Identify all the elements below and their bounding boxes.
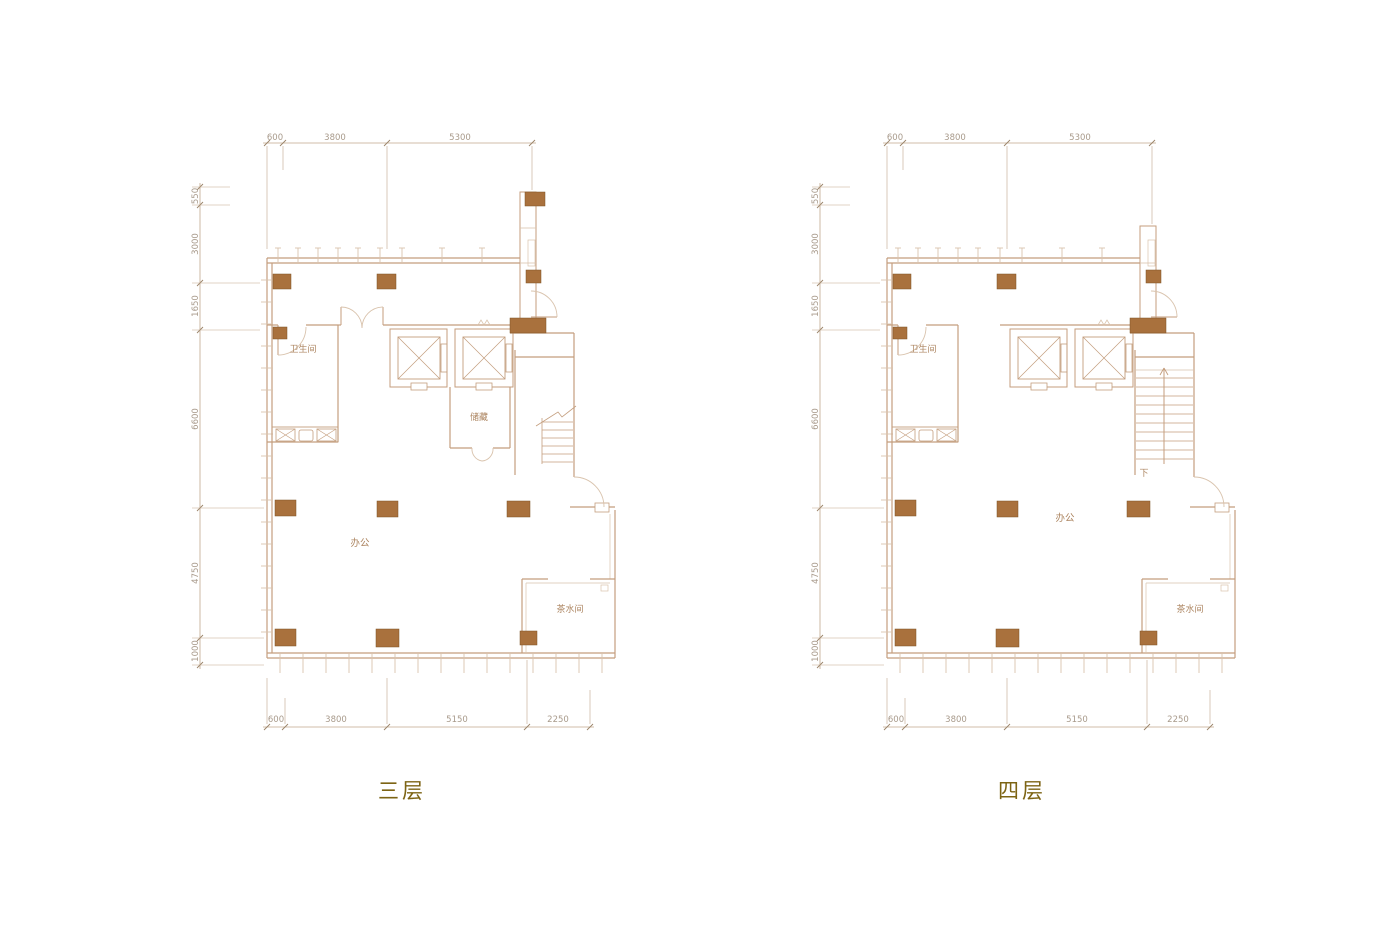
dim-left-0: 550 bbox=[811, 188, 821, 204]
dim-left-2: 1650 bbox=[191, 295, 201, 317]
structural-columns bbox=[893, 270, 1166, 647]
room-label-office: 办公 bbox=[1055, 512, 1075, 524]
dim-left-5: 1000 bbox=[811, 640, 821, 662]
room-label-office: 办公 bbox=[350, 537, 370, 549]
floor-title-fourth: 四层 bbox=[932, 775, 1112, 805]
dim-left-5: 1000 bbox=[191, 640, 201, 662]
dim-left-2: 1650 bbox=[811, 295, 821, 317]
dim-bottom-0: 600 bbox=[268, 715, 284, 725]
dim-bottom-3: 2250 bbox=[547, 715, 569, 725]
dim-left-4: 4750 bbox=[191, 562, 201, 584]
dim-top-0: 600 bbox=[887, 133, 903, 143]
plan-geometry: 6003800530055030001650660047501000600380… bbox=[811, 133, 1235, 730]
dim-top-1: 3800 bbox=[944, 133, 966, 143]
structural-columns bbox=[273, 192, 546, 647]
room-label-tea-room: 茶水间 bbox=[1176, 603, 1203, 615]
dim-bottom-2: 5150 bbox=[1066, 715, 1088, 725]
dim-bottom-2: 5150 bbox=[446, 715, 468, 725]
dim-left-0: 550 bbox=[191, 188, 201, 204]
dim-top-0: 600 bbox=[267, 133, 283, 143]
room-label-tea-room: 茶水间 bbox=[556, 603, 583, 615]
plan-geometry: 6003800530055030001650660047501000600380… bbox=[191, 133, 615, 730]
floor-plan-third: 6003800530055030001650660047501000600380… bbox=[190, 130, 690, 830]
room-label-storage: 储藏 bbox=[470, 411, 488, 423]
dim-bottom-0: 600 bbox=[888, 715, 904, 725]
dim-bottom-1: 3800 bbox=[325, 715, 347, 725]
dim-left-1: 3000 bbox=[811, 233, 821, 255]
dim-left-4: 4750 bbox=[811, 562, 821, 584]
dim-top-2: 5300 bbox=[1069, 133, 1091, 143]
dim-left-3: 6600 bbox=[191, 408, 201, 430]
dim-bottom-1: 3800 bbox=[945, 715, 967, 725]
dim-bottom-3: 2250 bbox=[1167, 715, 1189, 725]
dim-left-1: 3000 bbox=[191, 233, 201, 255]
floor-plan-third-drawing: 6003800530055030001650660047501000600380… bbox=[190, 130, 690, 830]
room-label-bathroom: 卫生间 bbox=[909, 343, 936, 355]
room-label-bathroom: 卫生间 bbox=[289, 343, 316, 355]
floor-title-third: 三层 bbox=[312, 775, 492, 805]
floor-plan-fourth-drawing: 6003800530055030001650660047501000600380… bbox=[810, 130, 1310, 830]
floor-plan-fourth: 6003800530055030001650660047501000600380… bbox=[810, 130, 1310, 830]
dim-top-1: 3800 bbox=[324, 133, 346, 143]
dim-top-2: 5300 bbox=[449, 133, 471, 143]
dim-left-3: 6600 bbox=[811, 408, 821, 430]
floor-plans-canvas: 6003800530055030001650660047501000600380… bbox=[0, 0, 1400, 933]
stair-down-label: 下 bbox=[1139, 469, 1148, 479]
